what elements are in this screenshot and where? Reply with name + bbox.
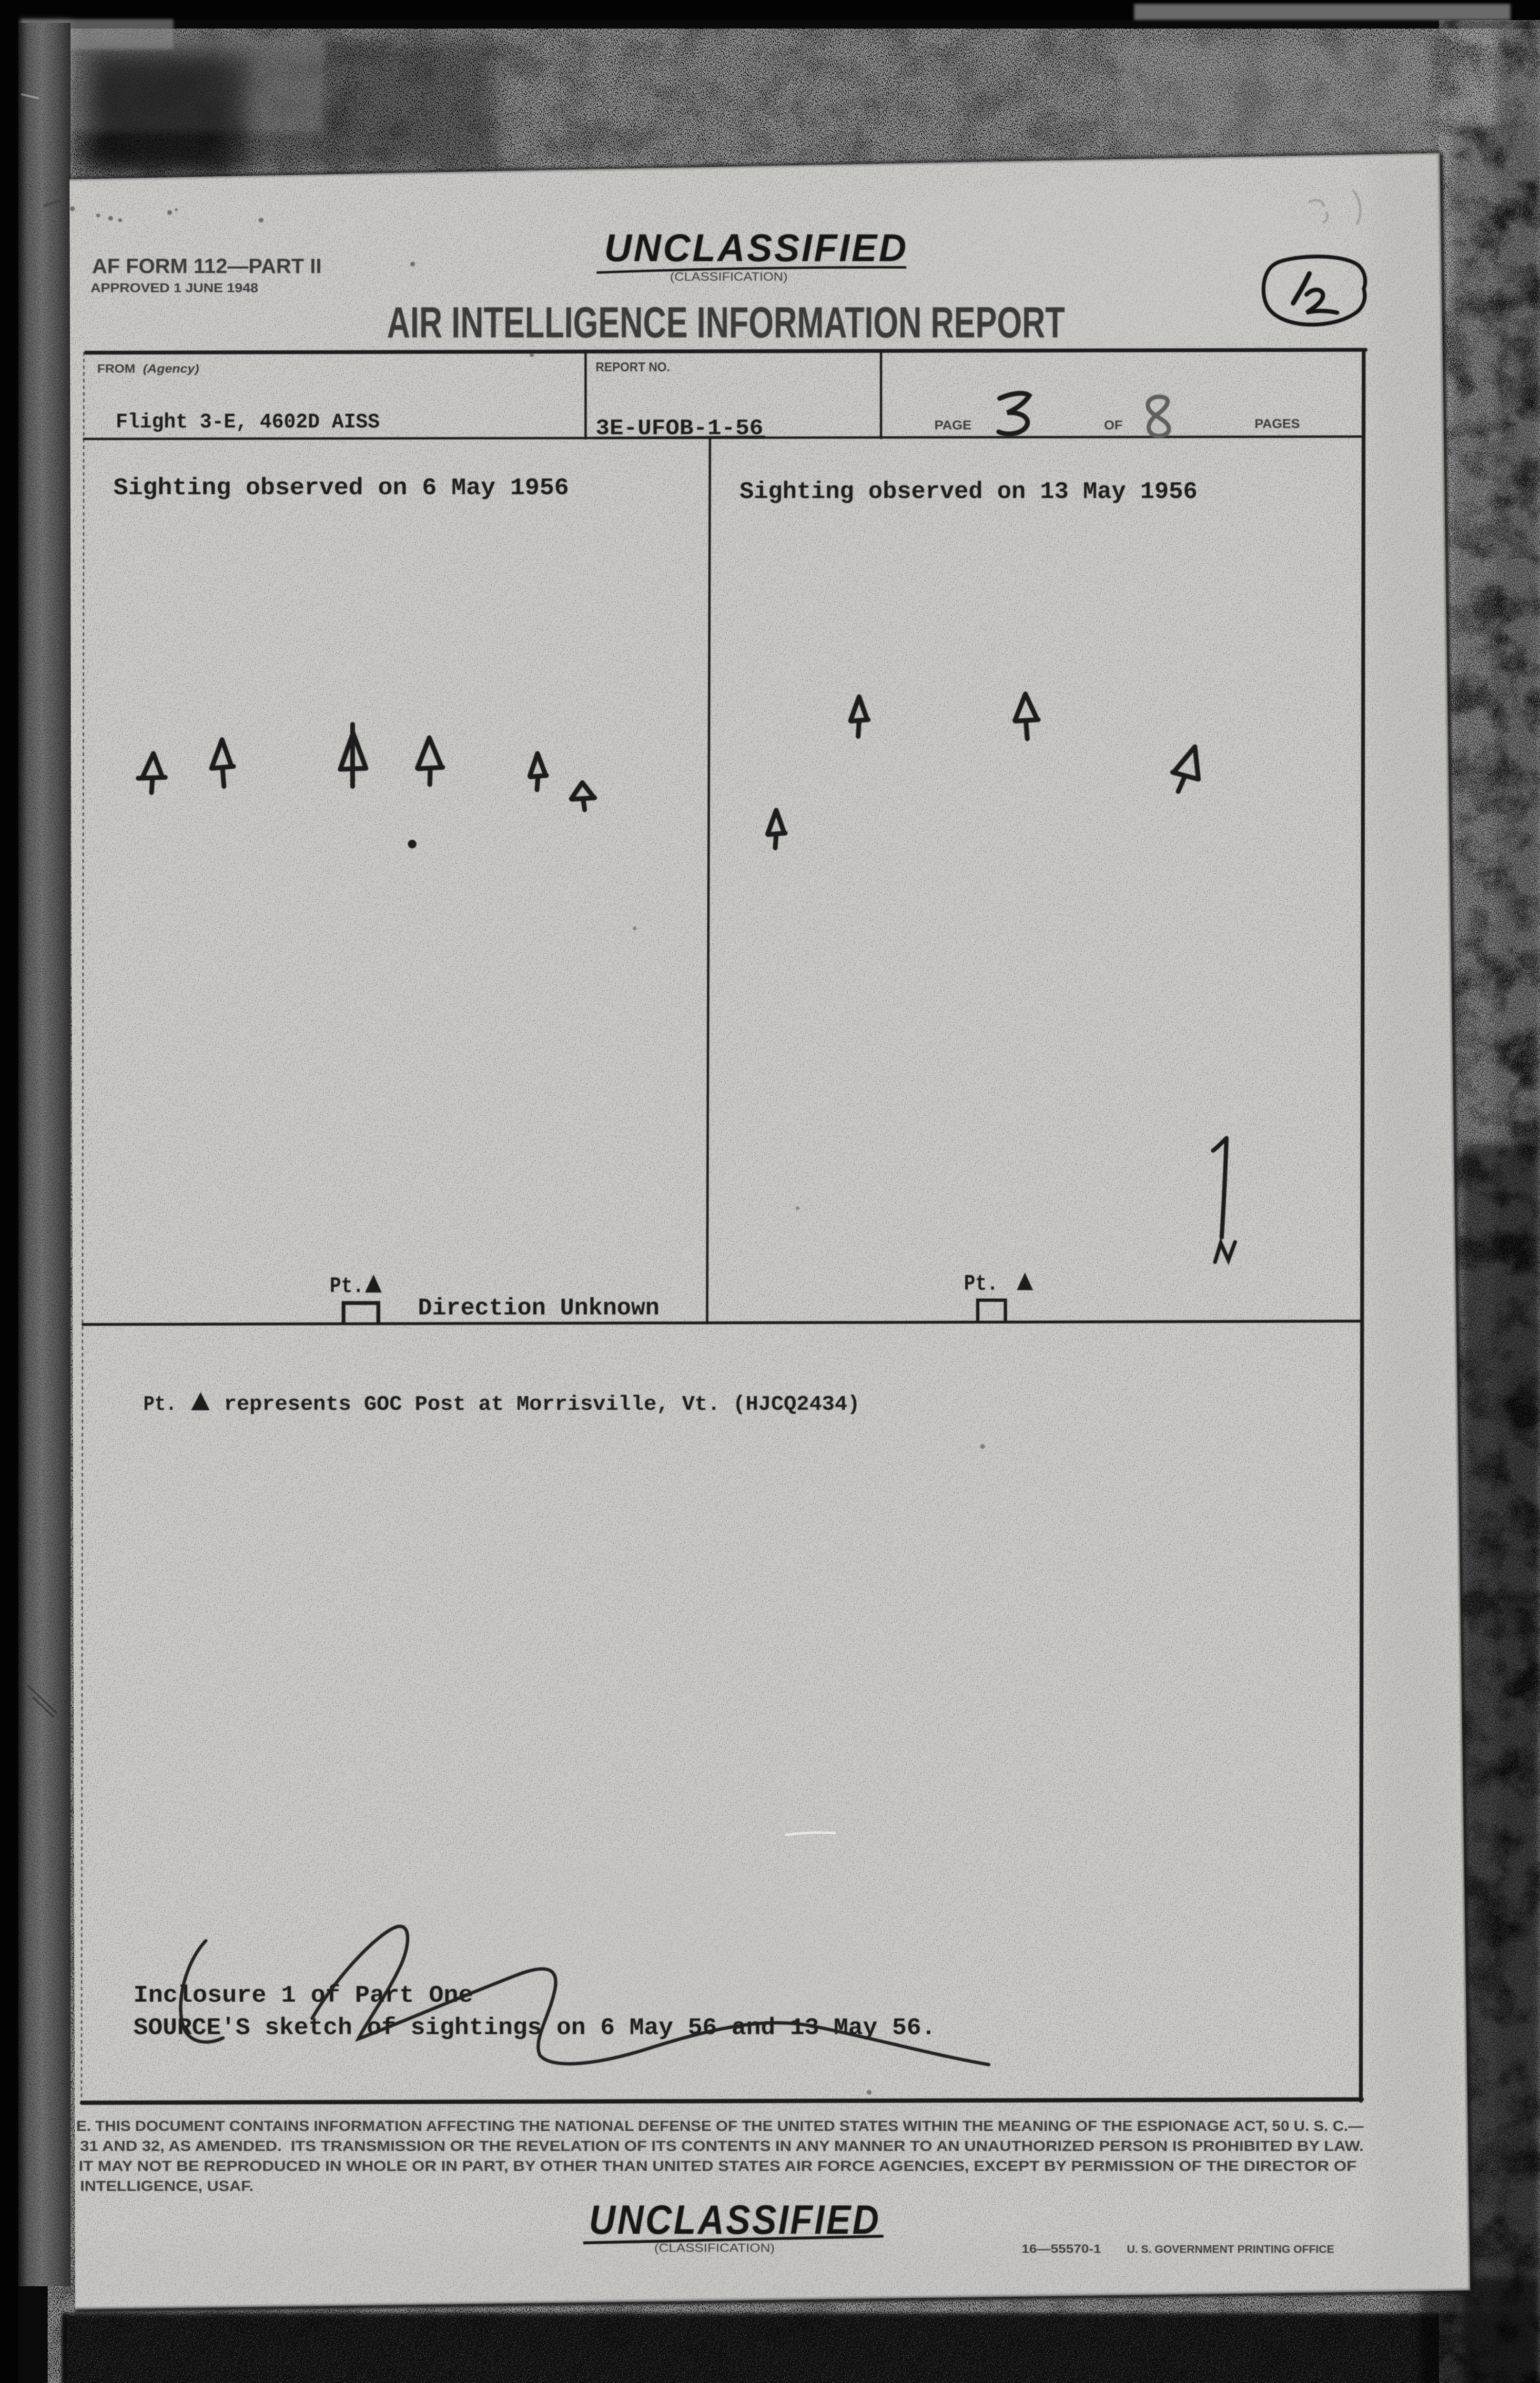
svg-text:PAGES: PAGES [1255,417,1300,431]
svg-text:REPORT NO.: REPORT NO. [596,360,670,374]
svg-text:Direction Unknown: Direction Unknown [418,1295,659,1322]
svg-text:OF: OF [1104,418,1123,432]
svg-text:Pt.: Pt. [330,1274,364,1299]
svg-text:31 AND 32, AS AMENDED. ITS TR: 31 AND 32, AS AMENDED. ITS TRANSMISSION … [80,2138,1364,2154]
svg-text:AIR INTELLIGENCE INFORMATION R: AIR INTELLIGENCE INFORMATION REPORT [387,298,1065,347]
svg-text:(CLASSIFICATION): (CLASSIFICATION) [670,270,788,284]
svg-text:FROM: FROM [97,362,135,376]
svg-text:represents GOC Post at Morrisv: represents GOC Post at Morrisville, Vt. … [224,1393,860,1416]
svg-text:APPROVED 1 JUNE 1948: APPROVED 1 JUNE 1948 [91,281,258,295]
svg-text:Flight 3-E, 4602D AISS: Flight 3-E, 4602D AISS [116,410,380,434]
svg-text:(Agency): (Agency) [143,362,199,376]
svg-text:Sighting observed on 13 May 19: Sighting observed on 13 May 1956 [740,479,1197,506]
svg-text:IT MAY NOT BE REPRODUCED IN WH: IT MAY NOT BE REPRODUCED IN WHOLE OR IN … [79,2158,1357,2174]
svg-text:UNCLASSIFIED: UNCLASSIFIED [604,226,908,270]
svg-text:INTELLIGENCE, USAF.: INTELLIGENCE, USAF. [80,2178,253,2194]
svg-text:16—55570-1: 16—55570-1 [1022,2242,1101,2256]
svg-text:Pt.: Pt. [964,1272,998,1296]
svg-text:(CLASSIFICATION): (CLASSIFICATION) [654,2241,775,2255]
svg-text:PAGE: PAGE [934,418,972,432]
svg-text:Pt.: Pt. [143,1393,177,1416]
svg-text:Sighting observed on 6 May 195: Sighting observed on 6 May 1956 [113,475,569,502]
svg-text:AF FORM 112—PART II: AF FORM 112—PART II [92,255,322,278]
svg-text:E. THIS DOCUMENT CONTAINS INFO: E. THIS DOCUMENT CONTAINS INFORMATION AF… [76,2118,1364,2134]
svg-text:U. S. GOVERNMENT PRINTING OFFI: U. S. GOVERNMENT PRINTING OFFICE [1127,2243,1334,2255]
